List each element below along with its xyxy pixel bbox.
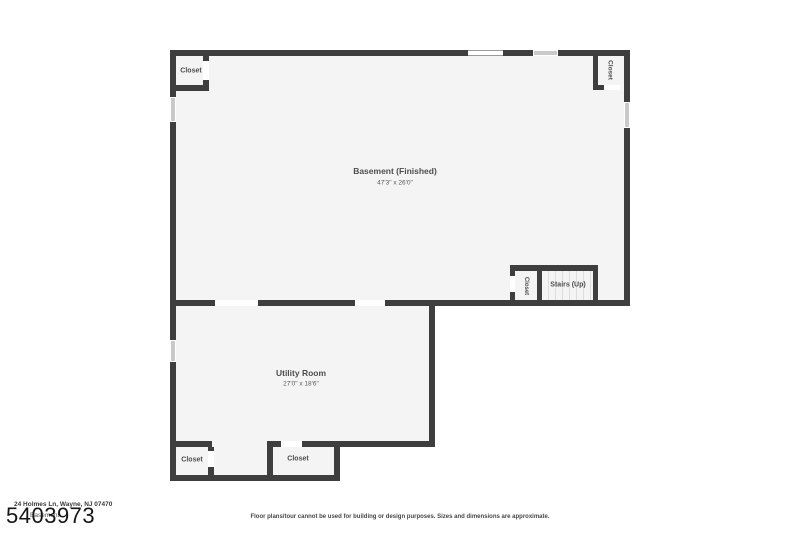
window xyxy=(468,50,503,56)
basement-room-dimensions: 47'3" x 26'0" xyxy=(377,180,413,187)
floor-plan-drawing xyxy=(0,0,800,533)
wall-segment xyxy=(170,122,176,306)
floor-plan-page: Basement (Finished) 47'3" x 26'0" Utilit… xyxy=(0,0,800,533)
stair-tread-line xyxy=(590,271,591,300)
wall-segment xyxy=(624,50,630,102)
stair-tread-line xyxy=(548,271,549,300)
window xyxy=(170,340,176,362)
wall-segment xyxy=(170,306,176,340)
closet-basement-right-label: Closet xyxy=(523,277,529,295)
wall-segment xyxy=(170,300,215,306)
utility-room-name: Utility Room xyxy=(276,368,326,378)
wall-segment xyxy=(170,362,176,481)
wall-segment xyxy=(537,271,542,300)
wall-segment xyxy=(510,265,598,271)
door-opening xyxy=(208,451,214,467)
wall-segment xyxy=(385,300,630,306)
closet-bottom-left-label: Closet xyxy=(181,457,202,464)
disclaimer-text: Floor plans/tour cannot be used for buil… xyxy=(0,514,800,520)
window xyxy=(170,97,176,122)
stairs-up-label: Stairs (Up) xyxy=(550,282,585,289)
wall-segment xyxy=(208,467,214,475)
wall-segment xyxy=(170,85,209,91)
wall-segment xyxy=(510,292,515,300)
door-opening xyxy=(604,85,620,90)
door-opening xyxy=(203,61,209,80)
door-opening xyxy=(281,441,302,447)
basement-room-name: Basement (Finished) xyxy=(353,166,437,176)
door-opening xyxy=(215,300,258,306)
door-opening xyxy=(355,300,385,306)
wall-segment xyxy=(170,475,340,481)
wall-segment xyxy=(170,441,212,447)
closet-top-left-label: Closet xyxy=(180,68,201,75)
closet-top-right-label: Closet xyxy=(607,60,614,80)
wall-segment xyxy=(170,50,468,56)
wall-segment xyxy=(593,85,604,90)
wall-segment xyxy=(503,50,533,56)
utility-room-dimensions: 27'0" x 18'6" xyxy=(283,381,319,388)
wall-segment xyxy=(593,271,598,300)
door-opening xyxy=(510,276,515,292)
closet-bottom-middle-label: Closet xyxy=(287,456,308,463)
window xyxy=(533,50,558,56)
wall-segment xyxy=(302,441,435,447)
wall-segment xyxy=(258,300,355,306)
wall-segment xyxy=(624,128,630,306)
window xyxy=(624,102,630,128)
wall-segment xyxy=(429,306,435,447)
